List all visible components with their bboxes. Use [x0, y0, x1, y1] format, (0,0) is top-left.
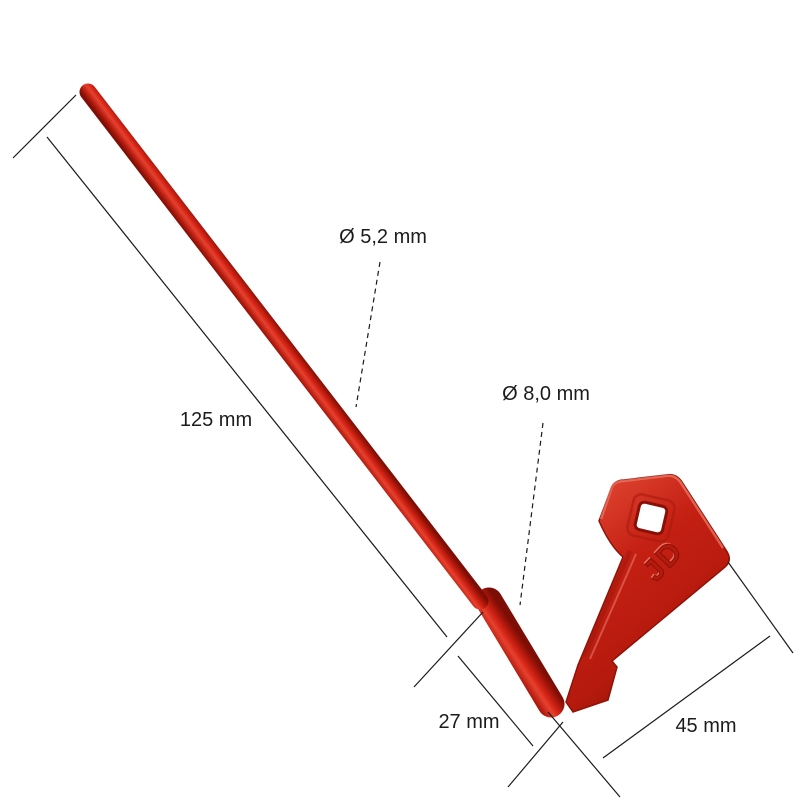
product-dimension-diagram: JD JD Ø 5,2 mm Ø 8,0 mm 125 mm 27 mm 45 … [0, 0, 800, 800]
extension-line-head-foot [548, 712, 620, 797]
label-shaft-length: 27 mm [438, 711, 499, 733]
key-rod [88, 92, 480, 601]
extension-line-step [414, 612, 483, 687]
extension-line-head-corner [728, 562, 793, 653]
key-illustration: JD JD [88, 92, 729, 712]
key-hole [634, 501, 668, 535]
label-rod-length: 125 mm [180, 409, 252, 431]
diagram-canvas: JD JD Ø 5,2 mm Ø 8,0 mm 125 mm 27 mm 45 … [0, 0, 800, 800]
extension-line-rod-tip [13, 95, 76, 158]
leader-line-shaft-diameter [520, 423, 543, 605]
leader-line-rod-diameter [356, 262, 380, 407]
label-shaft-diameter: Ø 8,0 mm [502, 383, 590, 405]
label-head-width: 45 mm [675, 715, 736, 737]
label-rod-diameter: Ø 5,2 mm [339, 226, 427, 248]
key-shaft [489, 601, 551, 704]
dimension-line-rod-length [47, 137, 447, 637]
extension-line-shaft-tip [508, 722, 563, 787]
dimension-line-head-width [603, 636, 770, 758]
dimension-lines [13, 95, 793, 797]
